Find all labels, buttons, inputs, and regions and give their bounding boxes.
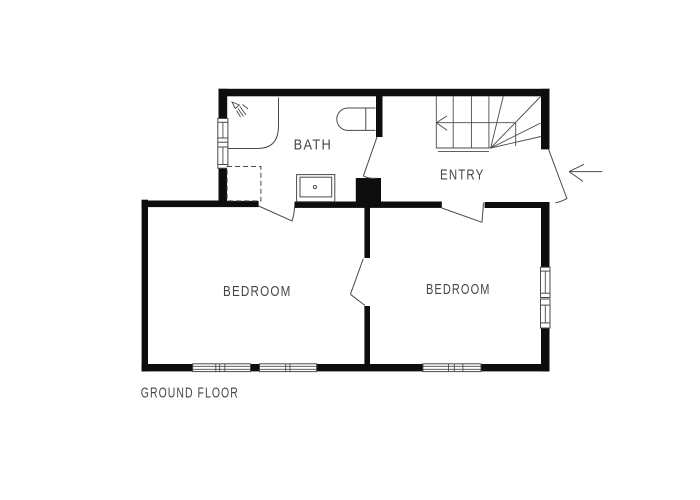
svg-text:BATH: BATH: [294, 136, 333, 153]
svg-text:ENTRY: ENTRY: [440, 166, 485, 183]
svg-text:BEDROOM: BEDROOM: [426, 281, 491, 298]
svg-text:BEDROOM: BEDROOM: [223, 283, 292, 300]
svg-text:GROUND FLOOR: GROUND FLOOR: [141, 385, 239, 402]
